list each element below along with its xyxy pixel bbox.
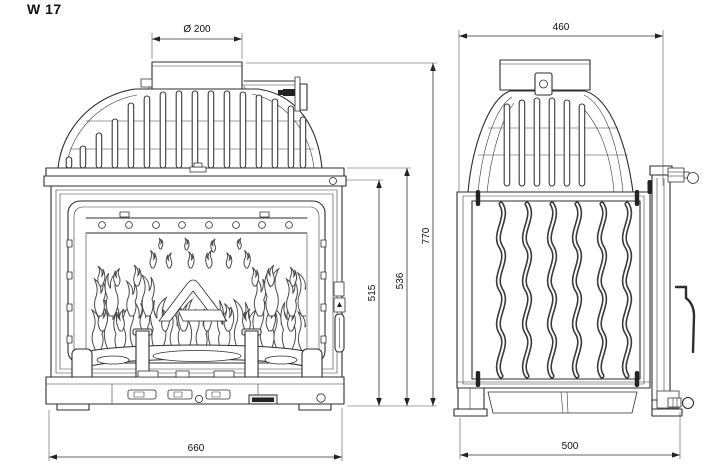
technical-drawing-sheet: W 17: [0, 0, 720, 465]
dim-overall-width: 660: [49, 408, 342, 461]
drawing-canvas: Ø 200 460 770: [0, 0, 720, 465]
side-door-profile: [648, 166, 699, 409]
door-handle-front: [334, 282, 345, 352]
dim-door-height: 515: [345, 180, 383, 406]
base-front: [46, 371, 344, 410]
dim-flue-diameter: Ø 200: [152, 24, 242, 59]
collar-mount-tab: [535, 73, 552, 95]
heat-exchanger-dome-side: [468, 73, 633, 192]
side-body: [457, 190, 650, 388]
dim-label-overall-width: 660: [188, 443, 205, 454]
fire-door: [51, 186, 345, 386]
dim-label-overall-depth: 500: [562, 441, 579, 452]
flue-collar-front: [141, 62, 246, 89]
dim-label-door-height: 515: [367, 284, 378, 301]
brand-plate: [249, 395, 277, 404]
dim-label-flue-diameter: Ø 200: [183, 24, 211, 35]
dim-label-body-height: 536: [395, 272, 406, 289]
side-panel-ribs: [498, 204, 629, 376]
dim-overall-depth: 500: [460, 412, 680, 459]
dim-label-top-width: 460: [553, 22, 570, 33]
heat-exchanger-dome-front: [58, 77, 322, 168]
dim-label-overall-height: 770: [421, 227, 432, 244]
front-view: [44, 62, 346, 410]
side-door-handle: [676, 287, 694, 352]
side-view: [454, 60, 699, 416]
